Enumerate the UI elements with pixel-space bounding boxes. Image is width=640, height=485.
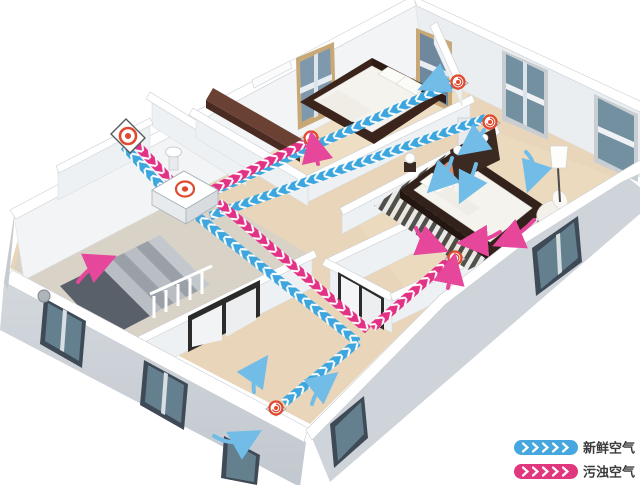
legend: 新鲜空气 污浊空气 [514,440,635,480]
exterior-vent-hole [38,290,50,302]
legend-row-fresh: 新鲜空气 [514,440,635,456]
legend-label-exhaust: 污浊空气 [583,465,635,480]
ventilation-diagram: 新鲜空气 污浊空气 [0,0,640,485]
nightstand-lamp [404,153,416,172]
legend-label-fresh: 新鲜空气 [583,441,635,456]
legend-row-exhaust: 污浊空气 [514,464,635,480]
